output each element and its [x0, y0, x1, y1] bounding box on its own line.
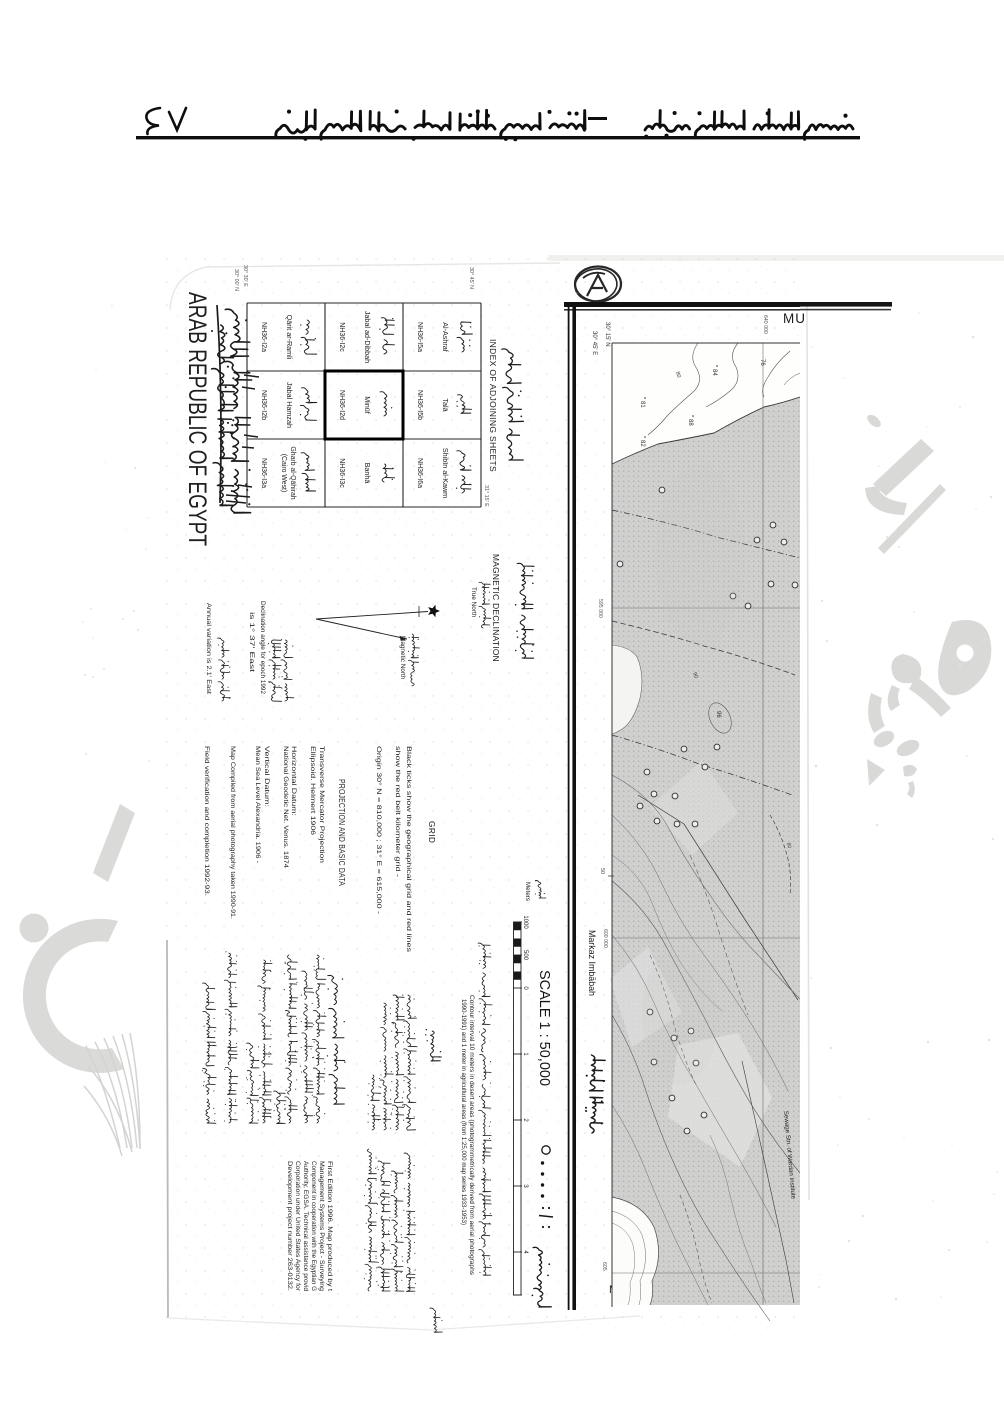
svg-text:Horizontal Datum:: Horizontal Datum:	[290, 746, 297, 816]
svg-text:30° 45' N: 30° 45' N	[468, 267, 474, 289]
svg-text:Gharb al-Qāhirah: Gharb al-Qāhirah	[289, 446, 296, 499]
svg-text:show the red belt kilometer gr: show the red belt kilometer grid -	[394, 746, 401, 877]
svg-text:Component in cooperation with: Component in cooperation with the Egypti…	[310, 1161, 317, 1291]
svg-text:81: 81	[639, 401, 645, 408]
svg-text:640 000: 640 000	[762, 315, 768, 334]
svg-text:Jabal Hamzah: Jabal Hamzah	[285, 382, 294, 428]
svg-text:30° 15' N: 30° 15' N	[604, 322, 610, 347]
svg-text:Markaz Imbābah: Markaz Imbābah	[587, 930, 597, 996]
svg-text:SCALE 1 : 50,000: SCALE 1 : 50,000	[536, 970, 552, 1086]
svg-text:Contour interval 10 meters in: Contour interval 10 meters in desert are…	[468, 995, 475, 1276]
svg-text:Shibīn al-Kawm: Shibīn al-Kawm	[441, 448, 450, 498]
svg-text:595 000: 595 000	[597, 599, 603, 618]
svg-text:Vertical Datum:: Vertical Datum:	[263, 746, 270, 807]
svg-text:Map Compiled from aerial photo: Map Compiled from aerial photography tak…	[229, 746, 236, 919]
svg-text:96: 96	[715, 711, 721, 718]
svg-text:Magnetic North: Magnetic North	[399, 636, 406, 680]
svg-text:84: 84	[711, 369, 717, 376]
svg-text:NH36-I5a: NH36-I5a	[416, 322, 423, 352]
svg-text:National Geodetic Net. Venus.: National Geodetic Net. Venus. 1874	[282, 746, 289, 868]
svg-text:Black ticks show the geographi: Black ticks show the geographical grid a…	[405, 746, 412, 953]
svg-text:Origin 30° N = 810,000 ; 31° E: Origin 30° N = 810,000 ; 31° E = 615,000…	[375, 746, 383, 914]
svg-text:ARAB REPUBLIC OF EGYPT: ARAB REPUBLIC OF EGYPT	[183, 292, 211, 546]
svg-text:Field verification and complet: Field verification and completion 1992-9…	[203, 746, 210, 896]
svg-text:30° 30' E: 30° 30' E	[242, 265, 248, 287]
svg-text:Jabal ad-Dibbah: Jabal ad-Dibbah	[363, 311, 372, 363]
svg-text:PROJECTION AND BASIC DATA: PROJECTION AND BASIC DATA	[337, 779, 346, 886]
svg-text:Meters: Meters	[524, 882, 531, 901]
svg-text:82: 82	[639, 440, 645, 447]
svg-text:NH36-I2a: NH36-I2a	[260, 322, 267, 352]
svg-text:Mean Sea Level Alexandria. 190: Mean Sea Level Alexandria. 1906 -	[254, 746, 261, 863]
svg-text:500: 500	[522, 950, 528, 961]
svg-text:First Edition 1996. Map prod: First Edition 1996. Map produced by t	[326, 1161, 333, 1291]
svg-text:Transverse Mercator Projection: Transverse Mercator Projection	[318, 746, 325, 863]
svg-text:605: 605	[601, 1262, 607, 1271]
svg-text:NH36-I2d: NH36-I2d	[338, 390, 345, 420]
svg-text:Management Systems Project -: Management Systems Project - Surveying	[318, 1161, 325, 1291]
svg-text:30° 00' N: 30° 00' N	[233, 269, 239, 291]
svg-text:Ellipsoid. Helmert 1906: Ellipsoid. Helmert 1906	[309, 746, 316, 835]
svg-text:600 000: 600 000	[602, 929, 608, 948]
svg-text:True North: True North	[470, 587, 477, 618]
svg-text:Declination angle for epoch 19: Declination angle for epoch 1992	[259, 601, 266, 694]
svg-text:NH36-I2b: NH36-I2b	[260, 390, 267, 420]
svg-text:31° 15' E: 31° 15' E	[483, 485, 489, 507]
svg-text:NH36-I6a: NH36-I6a	[416, 458, 423, 488]
svg-text:1990-1991) and 1 meter in agri: 1990-1991) and 1 meter in agricultural a…	[460, 999, 467, 1225]
svg-text:88: 88	[687, 419, 693, 426]
svg-text:1000: 1000	[522, 915, 528, 929]
svg-text:Minūf: Minūf	[363, 396, 372, 414]
svg-text:Development project number 263: Development project number 263-0132.	[286, 1161, 293, 1291]
svg-text:NH36-I3a: NH36-I3a	[260, 458, 267, 488]
svg-text:GRID: GRID	[427, 821, 436, 843]
svg-text:INDEX OF ADJOINING SHEETS: INDEX OF ADJOINING SHEETS	[488, 339, 498, 472]
svg-text:Authority, EGSA. Technical as: Authority, EGSA. Technical assistance pr…	[302, 1161, 309, 1291]
svg-text:Qārit ar-Ramli: Qārit ar-Ramli	[285, 315, 294, 360]
svg-text:(Cairo West): (Cairo West)	[280, 454, 287, 493]
svg-text:NH36-I3c: NH36-I3c	[338, 458, 345, 488]
svg-text:Corporation under United State: Corporation under United States Agency f…	[294, 1161, 301, 1292]
svg-text:is 1° 37' East: is 1° 37' East	[248, 612, 256, 672]
svg-text:50: 50	[599, 868, 605, 874]
svg-text:Talā: Talā	[441, 398, 450, 411]
svg-text:Annual variation is 2.1' Ea: Annual variation is 2.1' East	[205, 603, 212, 694]
svg-text:Al-Ashraf: Al-Ashraf	[441, 322, 450, 352]
svg-text:NH36-I5b: NH36-I5b	[416, 390, 423, 420]
svg-text:30° 45' E: 30° 45' E	[591, 331, 597, 355]
svg-text:NH36-I2c: NH36-I2c	[338, 322, 345, 352]
svg-text:76: 76	[759, 359, 765, 366]
svg-text:MAGNETIC DECLINATION: MAGNETIC DECLINATION	[491, 554, 501, 662]
svg-text:Banhā: Banhā	[363, 463, 372, 484]
